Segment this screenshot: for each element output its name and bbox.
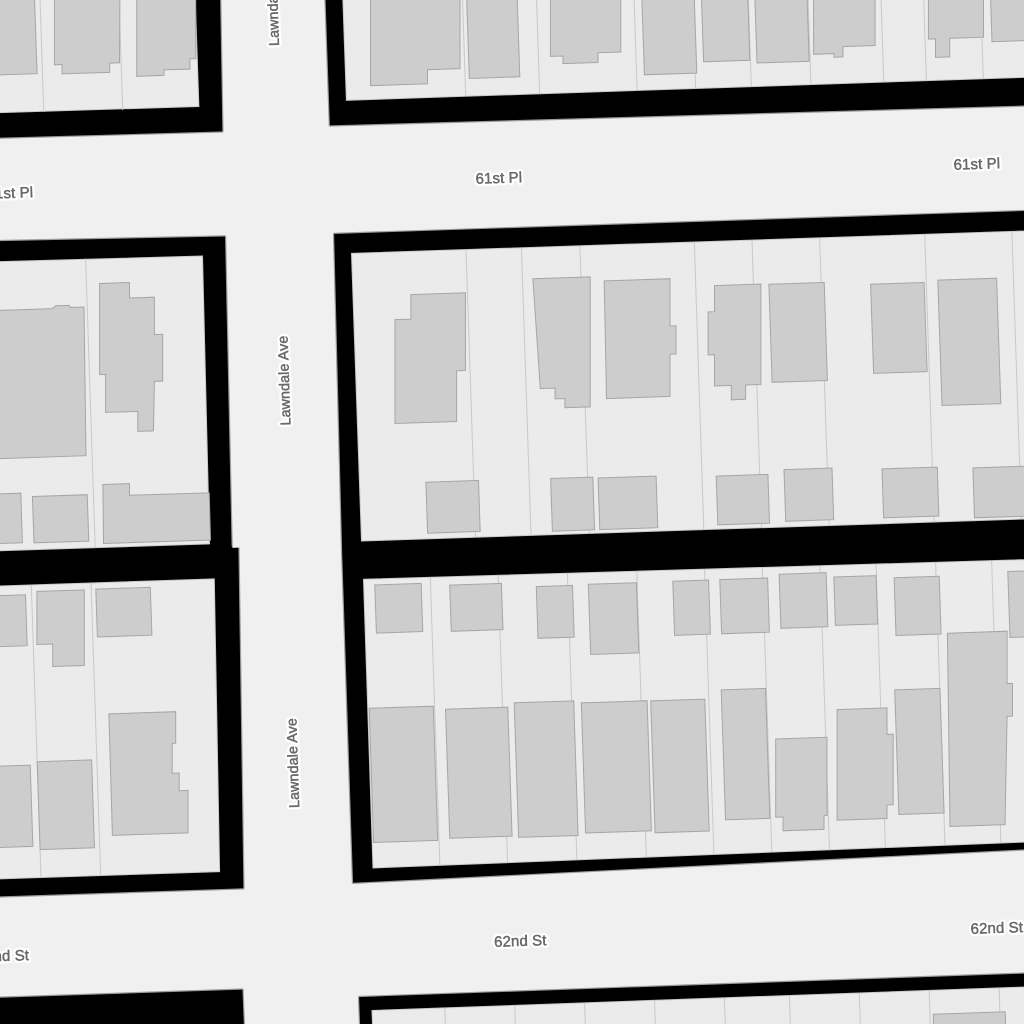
svg-text:61st Pl: 61st Pl bbox=[475, 169, 522, 188]
svg-text:62nd St: 62nd St bbox=[970, 919, 1024, 938]
svg-text:Lawndale Ave: Lawndale Ave bbox=[264, 0, 283, 46]
svg-text:61st Pl: 61st Pl bbox=[0, 184, 33, 203]
svg-text:61st Pl: 61st Pl bbox=[953, 155, 1000, 174]
svg-text:62nd St: 62nd St bbox=[0, 947, 30, 966]
svg-text:Lawndale Ave: Lawndale Ave bbox=[276, 335, 295, 425]
svg-text:Lawndale Ave: Lawndale Ave bbox=[284, 718, 303, 808]
svg-text:62nd St: 62nd St bbox=[494, 932, 548, 951]
